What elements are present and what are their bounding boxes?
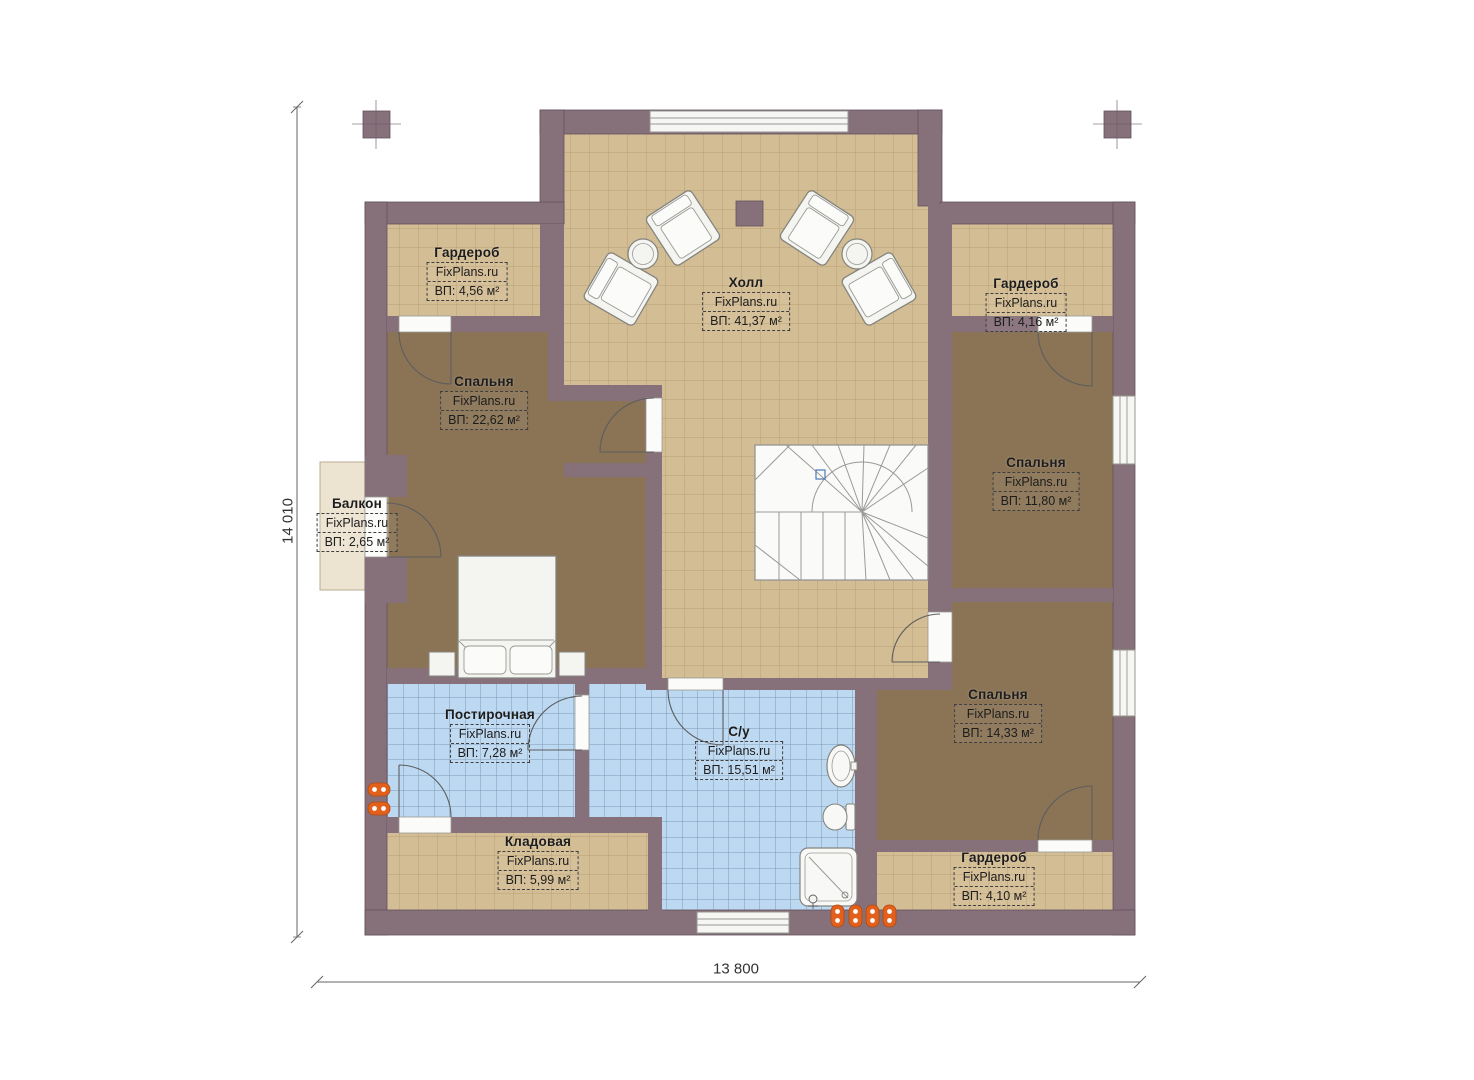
door-storage — [399, 817, 451, 833]
marker-bottom-wall — [831, 905, 844, 927]
round-table — [628, 239, 658, 269]
pier-top-right — [1104, 111, 1131, 138]
door-bedroom-br — [928, 612, 952, 662]
storage-floor — [387, 833, 648, 912]
door-bedroom-left — [646, 398, 662, 452]
door-bathroom — [668, 678, 723, 690]
door-balcony — [365, 497, 387, 557]
door-wardrobe-br — [1038, 840, 1092, 852]
floor-plan-svg — [0, 0, 1474, 1080]
toilet — [823, 804, 855, 830]
nightstand — [559, 652, 585, 676]
pier-top-left — [363, 111, 390, 138]
bedroom-bottom-right-window — [1113, 650, 1135, 716]
bedroom-right-window — [1113, 396, 1135, 464]
door-wardrobe-tl — [399, 316, 451, 332]
staircase — [755, 445, 928, 580]
marker-bottom-wall — [883, 905, 896, 927]
door-laundry — [575, 695, 589, 750]
nightstand — [429, 652, 455, 676]
wardrobe-bottom-right-floor — [877, 852, 1113, 912]
bed — [458, 556, 556, 678]
shower — [800, 848, 857, 909]
marker-left-wall — [368, 802, 390, 815]
wardrobe-top-right-floor — [952, 224, 1113, 318]
wardrobe-top-left-floor — [387, 222, 540, 318]
floors-layer — [320, 132, 1113, 912]
hall-pier — [736, 201, 763, 226]
bathroom-window — [697, 912, 789, 933]
bedroom-right-floor — [952, 332, 1113, 588]
floor-plan-page: Гардероб FixPlans.ru ВП: 4,56 м² Холл Fi… — [0, 0, 1474, 1080]
door-wardrobe-tr — [1038, 316, 1092, 332]
round-table — [842, 239, 872, 269]
marker-bottom-wall — [849, 905, 862, 927]
marker-left-wall — [368, 783, 390, 796]
hall-window — [650, 111, 848, 132]
marker-bottom-wall — [866, 905, 879, 927]
